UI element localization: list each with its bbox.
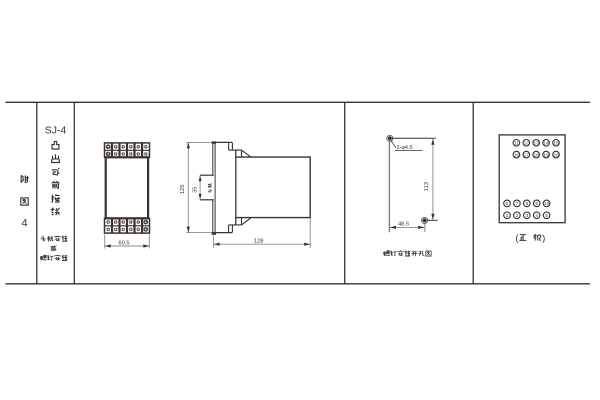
svg-text:2: 2 — [516, 213, 519, 219]
svg-text:128: 128 — [254, 238, 264, 244]
svg-text:14: 14 — [543, 141, 549, 147]
svg-text:16: 16 — [514, 152, 520, 158]
svg-text:6: 6 — [506, 201, 509, 207]
svg-text:1: 1 — [506, 213, 509, 219]
svg-text:13: 13 — [534, 141, 540, 147]
svg-text:(: ( — [515, 233, 519, 244]
svg-text:60.5: 60.5 — [118, 240, 129, 246]
svg-text:SJ-4: SJ-4 — [45, 124, 67, 136]
svg-text:4: 4 — [21, 218, 27, 230]
svg-text:113: 113 — [424, 182, 430, 191]
svg-text:18: 18 — [534, 152, 540, 158]
svg-text:2-φ4.5: 2-φ4.5 — [396, 145, 412, 151]
svg-text:3: 3 — [525, 213, 528, 219]
svg-text:9: 9 — [535, 201, 538, 207]
svg-text:125: 125 — [180, 185, 186, 195]
svg-text:15: 15 — [553, 141, 559, 147]
svg-text:12: 12 — [524, 141, 530, 147]
svg-text:8: 8 — [525, 201, 528, 207]
svg-text:4: 4 — [535, 213, 538, 219]
svg-text:19: 19 — [543, 152, 549, 158]
svg-text:11: 11 — [514, 141, 519, 147]
svg-text:17: 17 — [524, 152, 530, 158]
svg-text:48.5: 48.5 — [398, 222, 409, 228]
svg-text:35: 35 — [193, 187, 199, 193]
svg-text:): ) — [542, 233, 545, 244]
svg-text:7: 7 — [516, 201, 519, 207]
svg-text:10: 10 — [544, 201, 550, 207]
svg-text:5: 5 — [545, 213, 548, 219]
svg-text:20: 20 — [553, 152, 559, 158]
